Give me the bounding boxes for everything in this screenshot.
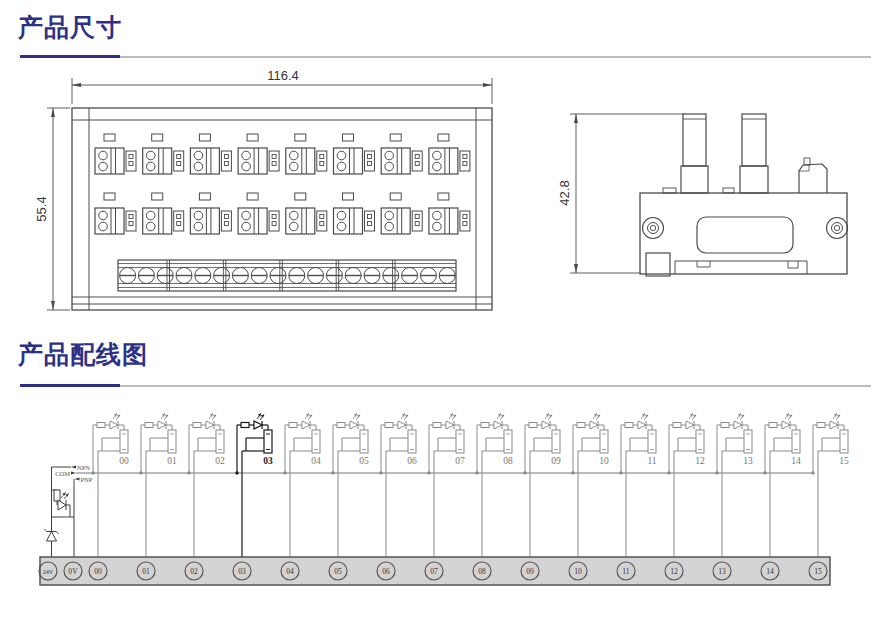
terminal-strip [118,260,456,291]
wiring-channel-01: 01 [140,414,177,563]
screw-terminal [439,268,455,284]
terminal-label-0V: 0V [68,567,78,576]
screw-terminal [214,268,230,284]
screw-terminal [120,268,136,284]
channel-label-11: 11 [647,456,656,466]
terminal-label-24V: 24V [43,568,54,575]
screw-terminal [383,268,399,284]
relay-unit [429,193,470,234]
dim-height-label: 55.4 [34,196,49,221]
rule-gray [120,56,871,58]
channel-label-10: 10 [599,456,609,466]
wiring-channel-10: 10 [572,414,609,563]
terminal-label-11: 11 [622,567,630,576]
relay-unit [143,134,184,174]
channel-label-05: 05 [359,456,369,466]
wiring-diagram: NPNCOMPNP0001020304050607080910111213141… [39,414,849,586]
terminal-label-13: 13 [718,567,726,576]
relay-unit [143,193,184,234]
wiring-channel-11: 11 [620,414,657,563]
screw-terminal [345,268,361,284]
screw [643,218,664,239]
terminal-label-14: 14 [766,567,774,576]
terminal-label-04: 04 [286,567,294,576]
label-com: COM [55,470,70,477]
screw-terminal [420,268,436,284]
terminal-label-12: 12 [670,567,678,576]
channel-label-01: 01 [167,456,177,466]
screw-terminal [138,268,154,284]
rule-gray [120,385,871,387]
dim-width-label: 116.4 [267,68,299,83]
screw-terminal [195,268,211,284]
channel-label-07: 07 [455,456,465,466]
label-npn: NPN [77,464,90,471]
terminal-label-08: 08 [478,567,486,576]
screw-terminal [232,268,248,284]
wiring-channel-00: 00 [92,414,129,563]
section-rule-wiring [20,384,871,387]
relay-unit [334,193,375,234]
power-indicator [52,490,75,517]
rule-accent [20,55,120,58]
side-view: 42.8 [557,114,848,276]
relay-unit [190,193,231,234]
relay-towers [681,114,768,193]
screw-terminal [402,268,418,284]
screw-terminal [289,268,305,284]
side-connector [799,158,827,193]
relay-unit [95,193,136,234]
terminal-label-03: 03 [238,567,246,576]
wiring-channel-12: 12 [668,414,705,563]
channel-label-04: 04 [311,456,321,466]
screw-terminal [251,268,267,284]
screw-terminal [176,268,192,284]
screw-terminal [270,268,286,284]
terminal-label-06: 06 [382,567,390,576]
terminal-label-10: 10 [574,567,582,576]
wiring-channel-15: 15 [812,414,849,563]
screw-terminal [364,268,380,284]
channel-label-12: 12 [695,456,705,466]
channel-label-06: 06 [407,456,417,466]
wiring-channel-13: 13 [716,414,753,563]
terminal-label-07: 07 [430,567,438,576]
relay-unit [95,134,136,174]
relay-unit [190,134,231,174]
front-view: 116.455.4 [34,68,492,310]
channel-label-14: 14 [791,456,801,466]
screw-terminal [326,268,342,284]
wiring-channel-05: 05 [332,414,369,563]
relay-unit [334,134,375,174]
wiring-channel-02: 02 [188,414,225,563]
rule-accent [20,384,120,387]
channel-label-00: 00 [119,456,129,466]
terminal-label-02: 02 [190,567,198,576]
screw-terminal [308,268,324,284]
dimension-width: 116.4 [72,68,492,104]
technical-drawing-canvas: 116.455.442.8NPNCOMPNP000102030405060708… [0,0,891,630]
terminal-label-01: 01 [142,567,150,576]
wiring-channel-09: 09 [524,414,561,563]
wiring-channel-03: 03 [236,414,273,563]
relay-unit [429,134,470,174]
label-pnp: PNP [81,476,93,483]
relay-unit [381,134,422,174]
wiring-channel-07: 07 [428,414,465,563]
channel-label-15: 15 [839,456,849,466]
wiring-channel-04: 04 [284,414,321,563]
channel-label-02: 02 [215,456,225,466]
section-title-dimensions: 产品尺寸 [18,13,122,42]
terminal-label-00: 00 [94,567,102,576]
relay-unit [238,134,279,174]
protection-diode [45,529,59,541]
relay-unit [286,134,327,174]
wiring-channel-06: 06 [380,414,417,563]
terminal-bar: 24V0V00010203040506070809101112131415 [39,557,830,585]
channel-label-09: 09 [551,456,561,466]
section-rule-dimensions [20,55,871,58]
din-rail-foot [646,253,807,276]
page-root: 116.455.442.8NPNCOMPNP000102030405060708… [0,0,891,630]
power-input-section: NPNCOMPNP [45,464,93,562]
terminal-label-09: 09 [526,567,534,576]
section-title-wiring: 产品配线图 [18,340,148,369]
dimension-height: 55.4 [34,108,70,310]
terminal-label-05: 05 [334,567,342,576]
screw [827,218,848,239]
terminal-label-15: 15 [814,567,822,576]
wiring-channel-08: 08 [476,414,513,563]
channel-label-13: 13 [743,456,753,466]
wiring-channel-14: 14 [764,414,801,563]
screw-terminal [157,268,173,284]
channel-label-08: 08 [503,456,513,466]
relay-unit [238,193,279,234]
dim-side-height-label: 42.8 [557,180,572,205]
relay-unit [381,193,422,234]
channel-label-03: 03 [263,456,273,466]
relay-unit [286,193,327,234]
